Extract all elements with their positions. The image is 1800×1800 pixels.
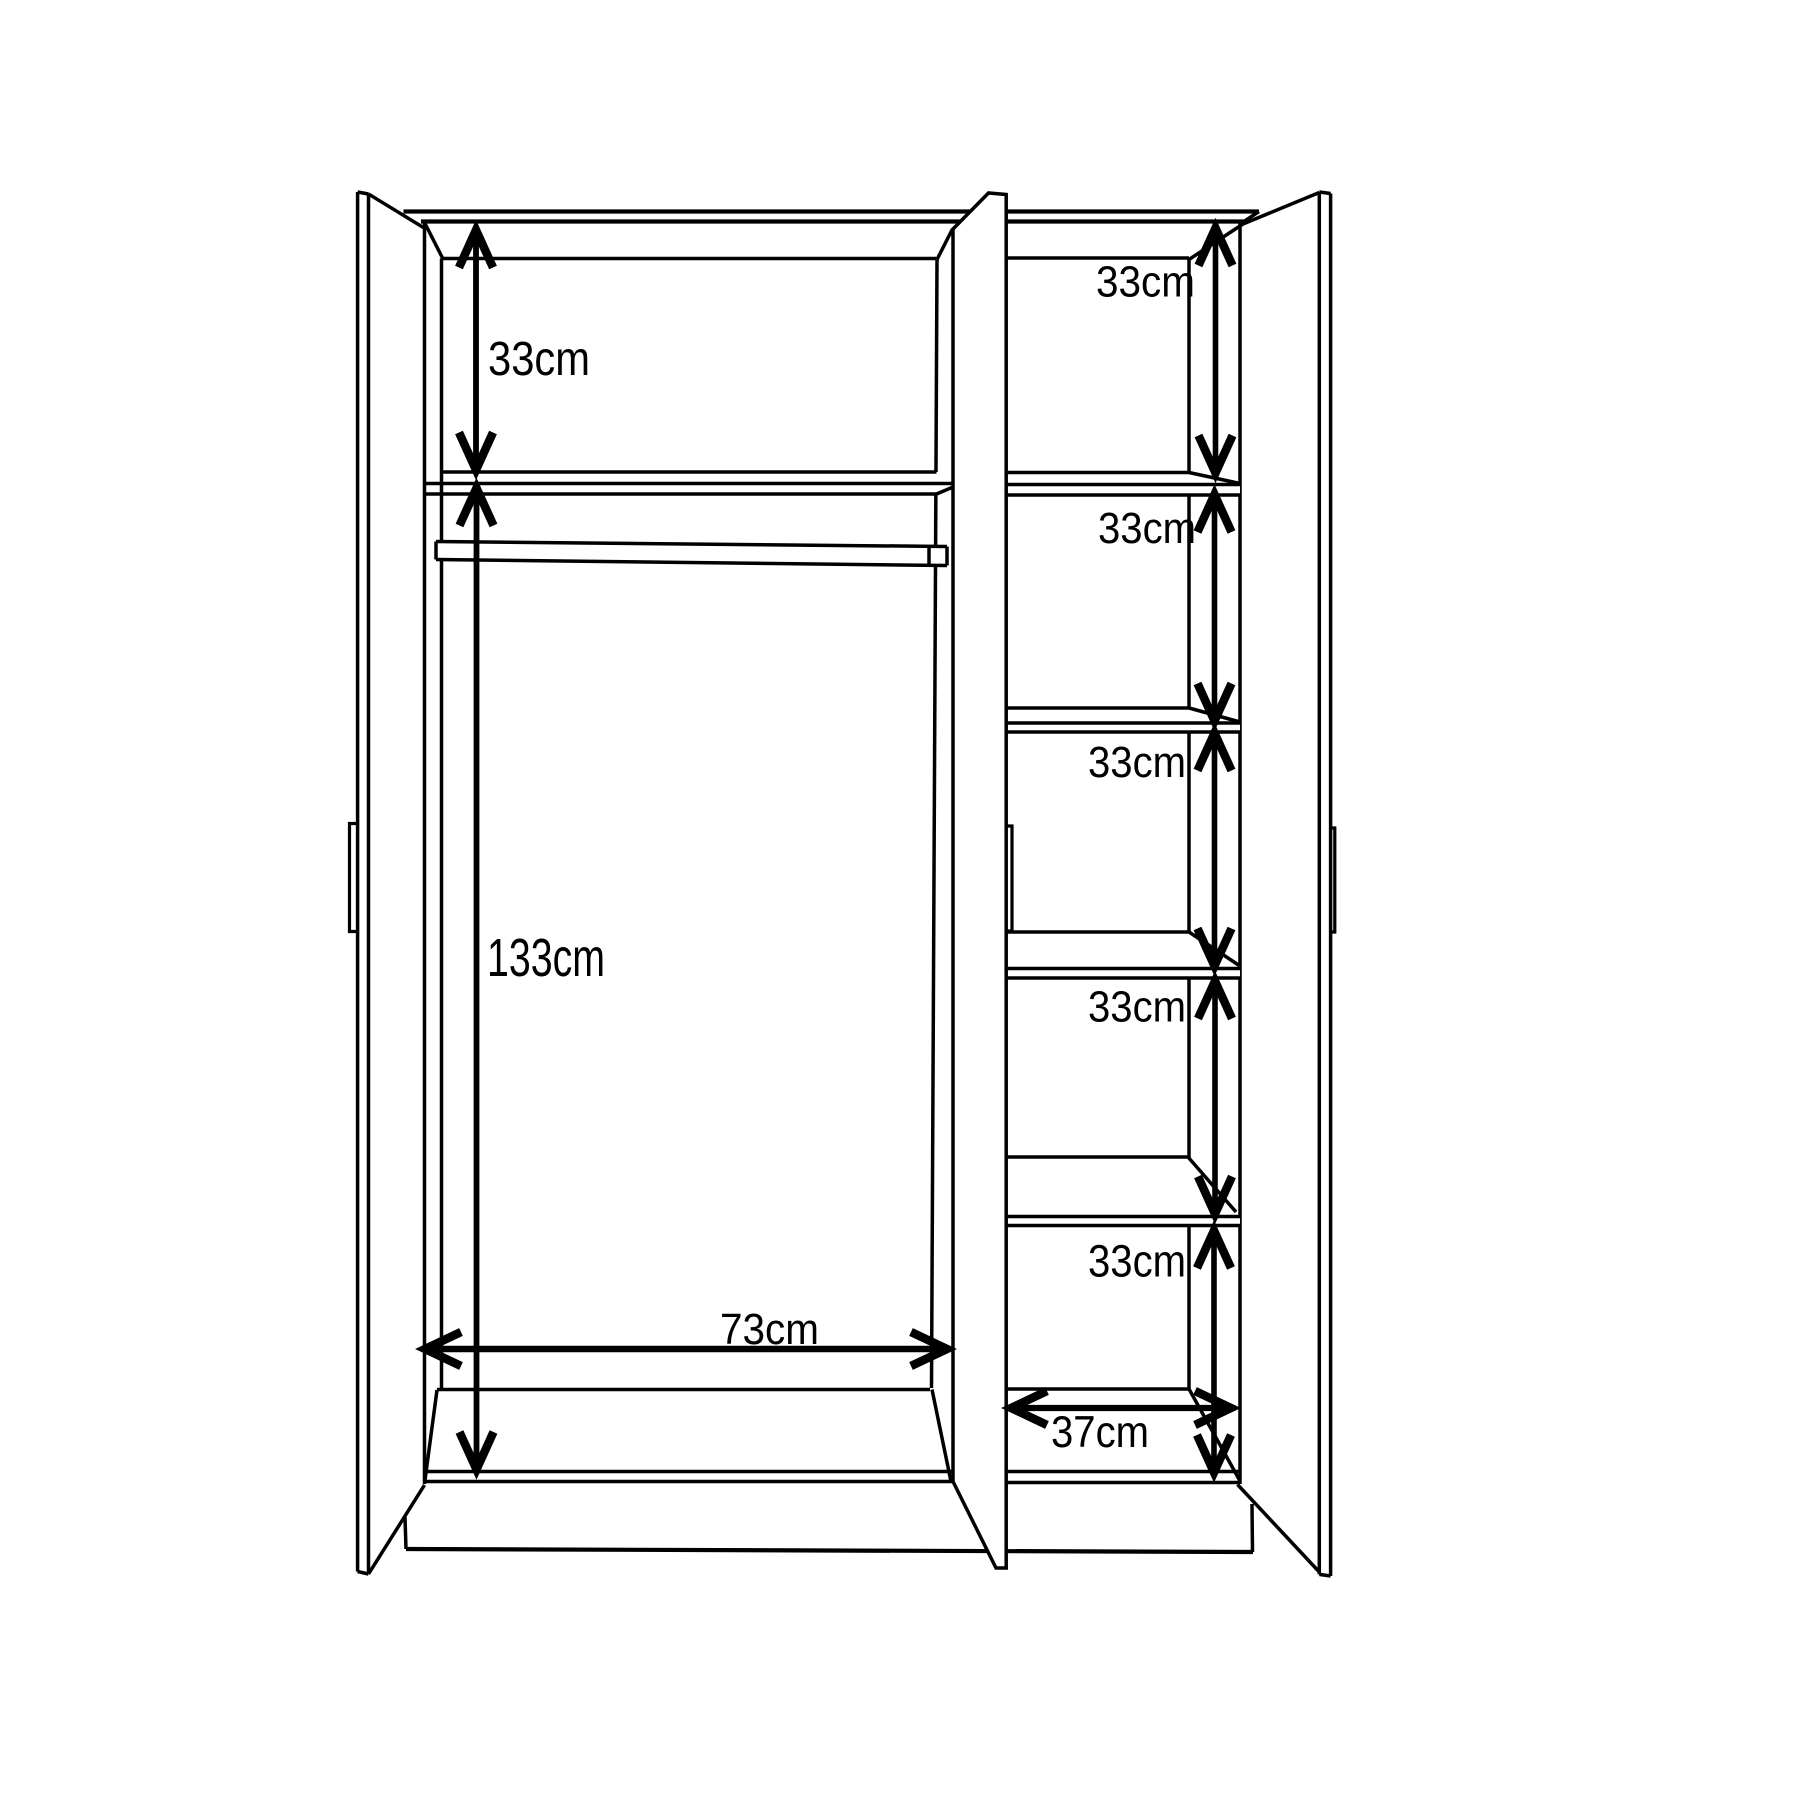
svg-text:33cm: 33cm [1098, 504, 1196, 553]
svg-text:33cm: 33cm [488, 333, 590, 386]
svg-text:33cm: 33cm [1088, 983, 1186, 1032]
svg-text:33cm: 33cm [1088, 738, 1186, 787]
svg-text:133cm: 133cm [487, 929, 605, 988]
svg-text:37cm: 37cm [1051, 1408, 1149, 1457]
svg-text:33cm: 33cm [1088, 1236, 1186, 1287]
svg-text:33cm: 33cm [1096, 258, 1195, 307]
svg-text:73cm: 73cm [720, 1305, 819, 1354]
